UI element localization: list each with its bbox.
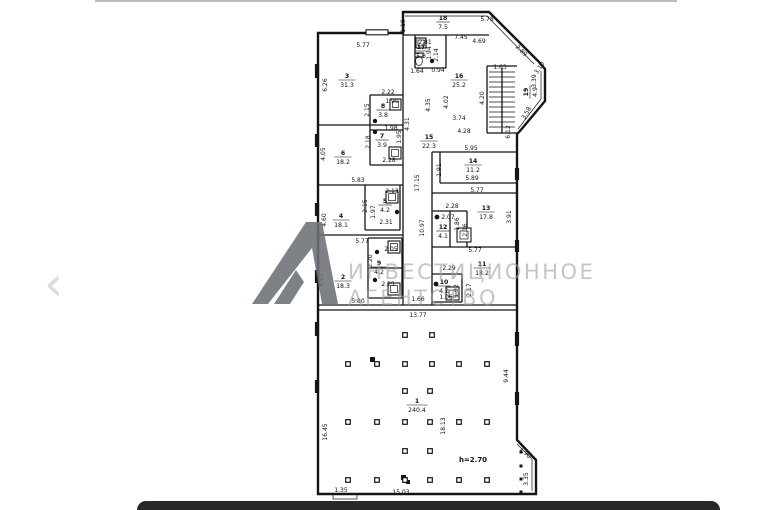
bay-post <box>520 465 523 468</box>
dim-label: 1.35 <box>334 487 348 494</box>
dim-label: 1.63 <box>493 64 507 71</box>
bay-post <box>520 491 523 494</box>
room-number: 3 <box>345 73 349 80</box>
dim-label: 1.64 <box>410 68 424 75</box>
column <box>375 478 380 483</box>
dim-label: 10.97 <box>419 219 426 236</box>
dim-label: 1.91 <box>436 163 443 177</box>
column <box>375 362 380 367</box>
dim-label: 3.91 <box>506 210 513 224</box>
room-area: 3.9 <box>377 142 387 149</box>
column <box>485 478 490 483</box>
dim-label: 4.69 <box>472 38 486 45</box>
dim-label: 15.03 <box>392 489 409 496</box>
floorplan-photo[interactable]: 1.195.787.454.692.895.776.262.811.942.14… <box>0 0 770 510</box>
room-number: 17 <box>417 44 426 51</box>
dim-label: 4.20 <box>479 91 486 105</box>
room-number: 5 <box>383 198 387 205</box>
column <box>428 389 433 394</box>
dim-label: 3.74 <box>452 115 466 122</box>
dim-label: 2.28 <box>445 203 459 210</box>
prev-photo-button[interactable]: ‹ <box>44 260 63 308</box>
column <box>403 389 408 394</box>
dim-label: 3.39 <box>531 74 538 88</box>
room-number: 12 <box>439 224 448 231</box>
room-area: 31.3 <box>340 82 354 89</box>
column <box>457 420 462 425</box>
dim-label: 7.45 <box>454 34 468 41</box>
dim-label: 2.15 <box>362 199 369 213</box>
dim-label: 5.78 <box>480 16 494 23</box>
dim-label: 2.16 <box>462 223 469 237</box>
column <box>403 420 408 425</box>
dim-label: 3.35 <box>523 472 530 486</box>
dim-label: 2.07 <box>441 214 455 221</box>
dim-label: 2.18 <box>365 135 372 149</box>
room-label: 1240.4 <box>407 398 428 414</box>
dim-label: 17.15 <box>414 174 421 191</box>
dim-label: 4.02 <box>443 95 450 109</box>
watermark-line2: АГЕНТСТВО <box>348 286 498 310</box>
bottom-sheet-edge[interactable] <box>137 501 720 510</box>
column <box>485 420 490 425</box>
room-label: 1411.2 <box>464 158 481 174</box>
floorplan-drawing: 1.195.787.454.692.895.776.262.811.942.14… <box>0 0 770 510</box>
dim-label: 5.77 <box>468 247 482 254</box>
dim-label: 2.22 <box>381 89 395 96</box>
room-label: 618.2 <box>334 150 351 166</box>
room-label: 83.8 <box>376 103 389 119</box>
column <box>375 420 380 425</box>
dim-label: 5.77 <box>470 187 484 194</box>
column <box>403 478 408 483</box>
dim-label: 9.44 <box>503 369 510 383</box>
room-area: 4.1 <box>438 233 448 240</box>
dim-label: 1.95 <box>396 130 403 144</box>
dim-label: 4.31 <box>404 117 411 131</box>
dim-label: 4.35 <box>425 98 432 112</box>
column <box>346 420 351 425</box>
ceiling-height-note: h=2.70 <box>459 456 487 464</box>
dim-label: 5.89 <box>465 175 479 182</box>
dim-label: 5.77 <box>356 42 370 49</box>
room-number: 14 <box>469 158 478 165</box>
dim-label: 16.45 <box>322 423 329 440</box>
dim-label: 2.15 <box>364 103 371 117</box>
dim-label: 1.19 <box>400 19 407 33</box>
dim-label: 5.83 <box>351 177 365 184</box>
column <box>430 333 435 338</box>
room-area: 240.4 <box>408 407 426 414</box>
dim-label: 1.97 <box>370 205 377 219</box>
dim-label: 1.90 <box>385 98 399 105</box>
room-label: 331.3 <box>338 73 355 89</box>
dim-label: 4.28 <box>457 128 471 135</box>
room-label: 1522.3 <box>420 134 437 150</box>
room-number: 19 <box>523 88 530 97</box>
dim-label: 1.86 <box>454 217 461 231</box>
room-area: 18.2 <box>336 159 350 166</box>
column <box>457 478 462 483</box>
room-area: 17.8 <box>479 214 493 221</box>
column <box>428 420 433 425</box>
column <box>428 449 433 454</box>
room-number: 8 <box>381 103 385 110</box>
room-area: 11.2 <box>466 167 480 174</box>
room-label: 73.9 <box>375 133 388 149</box>
dim-label: 6.26 <box>322 78 329 92</box>
column <box>346 362 351 367</box>
dim-label: 5.77 <box>355 238 369 245</box>
dim-label: 2.14 <box>433 48 440 62</box>
column <box>346 478 351 483</box>
dim-label: 6.12 <box>505 125 512 139</box>
column <box>403 362 408 367</box>
room-area: 25.2 <box>452 82 466 89</box>
room-label: 1625.2 <box>450 73 467 89</box>
dim-label: 18.13 <box>440 417 447 434</box>
dim-label: 0.94 <box>431 67 445 74</box>
room-area: 4.2 <box>380 207 390 214</box>
room-area: 3.8 <box>378 112 388 119</box>
dim-label: 2.31 <box>379 219 393 226</box>
column <box>403 449 408 454</box>
room-label: 187.5 <box>436 15 449 31</box>
room-number: 18 <box>439 15 448 22</box>
dim-label: 2.05 <box>384 246 398 253</box>
room-number: 7 <box>380 133 384 140</box>
column <box>430 362 435 367</box>
dim-label: 2.13 <box>385 188 399 195</box>
room-area: 22.3 <box>422 143 436 150</box>
dim-label: 1.94 <box>426 46 433 60</box>
room-number: 4 <box>339 213 344 220</box>
dim-label: 4.05 <box>320 147 327 161</box>
dim-label: 2.28 <box>382 157 396 164</box>
room-number: 1 <box>415 398 419 405</box>
column <box>428 478 433 483</box>
room-area: 7.5 <box>438 24 448 31</box>
room-area: 4.9 <box>532 87 539 97</box>
column <box>485 362 490 367</box>
agency-logo-watermark <box>244 220 338 310</box>
column <box>457 362 462 367</box>
dim-label: 5.95 <box>464 145 478 152</box>
room-number: 13 <box>482 205 491 212</box>
columns-layer <box>346 333 523 494</box>
room-label: 1317.8 <box>477 205 494 221</box>
room-number: 16 <box>455 73 464 80</box>
room-number: 6 <box>341 150 345 157</box>
column <box>403 333 408 338</box>
room-label: 124.1 <box>436 224 449 240</box>
room-area: 5.3 <box>416 53 426 60</box>
room-number: 15 <box>425 134 434 141</box>
room-number: 2 <box>341 274 345 281</box>
watermark-line1: ИНВЕСТИЦИОННОЕ <box>348 260 595 284</box>
dim-label: 13.77 <box>409 312 426 319</box>
